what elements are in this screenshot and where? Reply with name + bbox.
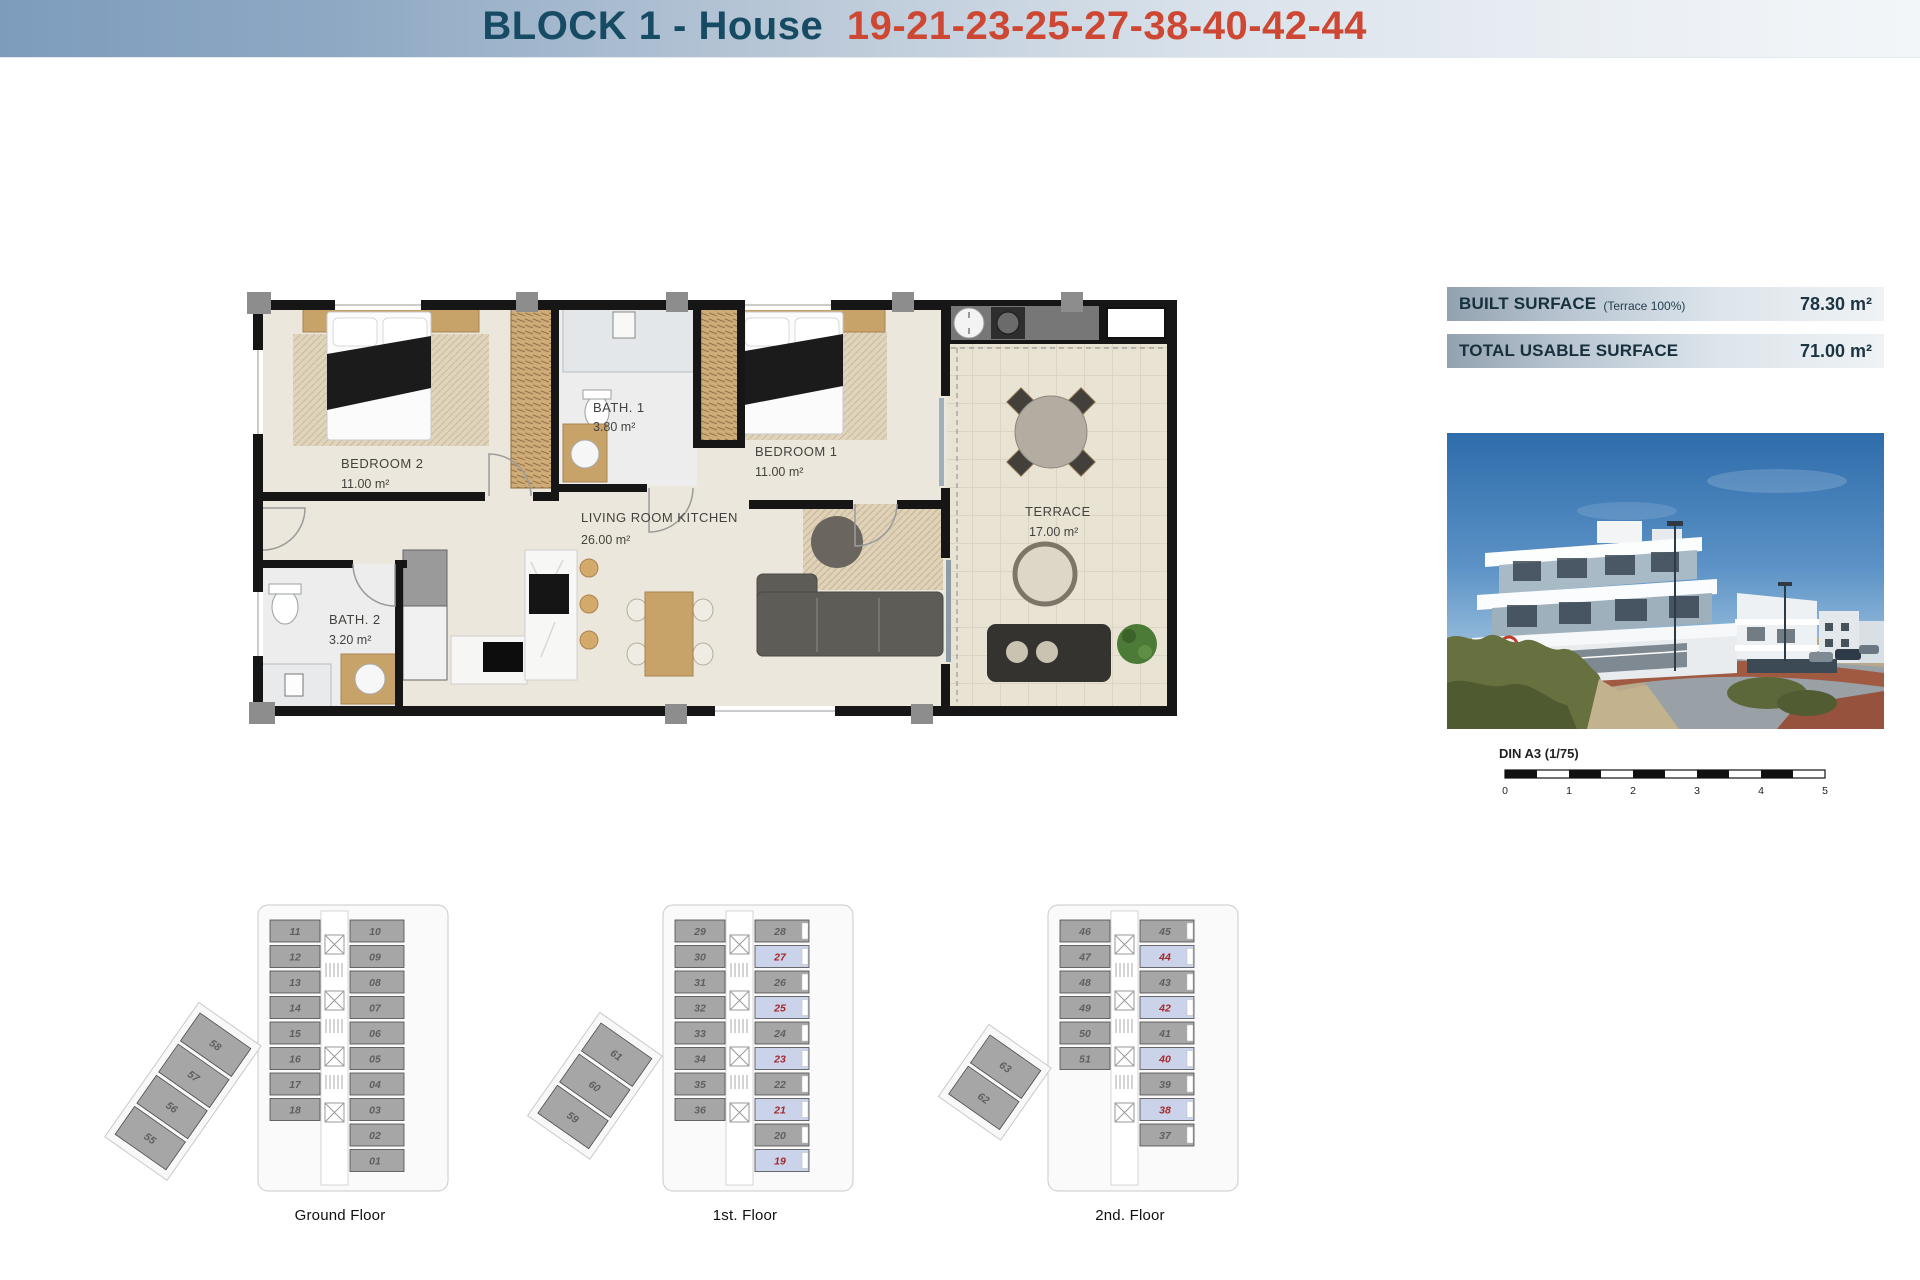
- balcony-notch: [802, 1153, 808, 1169]
- balcony-notch: [1187, 1127, 1193, 1143]
- unit-number: 17: [289, 1079, 302, 1091]
- balcony-notch: [802, 1051, 808, 1067]
- unit-number: 11: [290, 926, 301, 938]
- unit-number: 10: [369, 926, 381, 938]
- unit-number: 46: [1078, 926, 1091, 938]
- balcony-notch: [1187, 1025, 1193, 1041]
- scale-tick: 4: [1758, 785, 1764, 797]
- room-area-bedroom1: 11.00 m²: [755, 465, 803, 479]
- pillow: [745, 318, 789, 346]
- diagonal-wing: 616059: [528, 1012, 663, 1159]
- built-surface-value: 78.30 m²: [1800, 294, 1872, 315]
- balcony-notch: [1187, 1051, 1193, 1067]
- unit-number: 36: [694, 1105, 706, 1117]
- unit-number: 24: [773, 1028, 786, 1040]
- brochure-page: BLOCK 1 - House 19-21-23-25-27-38-40-42-…: [0, 0, 1920, 1280]
- balcony-notch: [802, 1127, 808, 1143]
- title-house-numbers: 19-21-23-25-27-38-40-42-44: [847, 4, 1367, 48]
- unit-number: 18: [289, 1105, 301, 1117]
- usable-surface-row: TOTAL USABLE SURFACE 71.00 m²: [1447, 334, 1884, 368]
- balcony-notch: [802, 1025, 808, 1041]
- balcony-notch: [802, 974, 808, 990]
- floor-label-ground: Ground Floor: [220, 1207, 460, 1224]
- fridge: [403, 550, 447, 606]
- unit-number: 35: [694, 1079, 706, 1091]
- balcony-notch: [1187, 974, 1193, 990]
- floor-plan-second: 6362464748495051454443424140393837 2nd. …: [890, 895, 1260, 1235]
- room-label-terrace: TERRACE: [1025, 504, 1091, 519]
- scale-segment: [1761, 770, 1793, 778]
- balcony-notch: [1187, 949, 1193, 965]
- terrace-round-rug: [1015, 544, 1075, 604]
- sliding-door: [939, 398, 944, 486]
- unit-number: 04: [369, 1079, 381, 1091]
- balcony-notch: [802, 949, 808, 965]
- scale-segment: [1569, 770, 1601, 778]
- unit-number: 32: [694, 1003, 706, 1015]
- chair: [693, 643, 713, 665]
- cooktop: [529, 574, 569, 614]
- floor-plan-first: 6160592930313233343536282726252423222120…: [505, 895, 875, 1235]
- scale-tick: 5: [1822, 785, 1828, 797]
- built-surface-label: BUILT SURFACE: [1459, 294, 1596, 314]
- unit-number: 51: [1079, 1054, 1091, 1066]
- unit-number: 38: [1159, 1105, 1171, 1117]
- unit-number: 16: [289, 1054, 301, 1066]
- sink: [355, 664, 385, 694]
- shower-fixture: [613, 312, 635, 338]
- balcony-notch: [1187, 1000, 1193, 1016]
- room-area-bath1: 3.80 m²: [593, 420, 635, 434]
- unit-number: 37: [1159, 1130, 1172, 1142]
- built-surface-note: (Terrace 100%): [1603, 296, 1685, 313]
- page-title: BLOCK 1 - House 19-21-23-25-27-38-40-42-…: [482, 4, 1366, 49]
- unit-number: 40: [1158, 1054, 1171, 1066]
- scale-segment: [1537, 770, 1569, 778]
- chair: [627, 599, 647, 621]
- pillow: [333, 318, 377, 346]
- balcony-notch: [802, 1076, 808, 1092]
- scale-segment: [1665, 770, 1697, 778]
- unit-number: 39: [1159, 1079, 1171, 1091]
- built-surface-row: BUILT SURFACE (Terrace 100%) 78.30 m²: [1447, 287, 1884, 321]
- stool: [580, 595, 598, 613]
- scale-segment: [1793, 770, 1825, 778]
- unit-number: 01: [369, 1156, 381, 1168]
- scale-label: DIN A3 (1/75): [1499, 746, 1837, 761]
- lamp-head: [1667, 521, 1683, 526]
- scale-tick: 0: [1502, 785, 1508, 797]
- plant-leaf: [1122, 629, 1136, 643]
- unit-number: 25: [773, 1003, 786, 1015]
- unit-number: 30: [694, 952, 706, 964]
- unit-number: 14: [289, 1003, 301, 1015]
- unit-number: 22: [773, 1079, 786, 1091]
- wardrobe: [701, 302, 741, 442]
- wardrobe: [511, 302, 553, 488]
- unit-number: 50: [1079, 1028, 1091, 1040]
- unit-number: 28: [773, 926, 786, 938]
- unit-number: 12: [289, 952, 301, 964]
- room-area-living: 26.00 m²: [581, 533, 630, 547]
- unit-number: 34: [694, 1054, 706, 1066]
- unit-number: 13: [289, 977, 301, 989]
- apartment-plan-drawing: BEDROOM 2 11.00 m² BATH. 1 3.80 m² BEDRO…: [245, 292, 1185, 724]
- floor-plan-ground: 5857565511121314151617181009080706050403…: [100, 895, 470, 1235]
- usable-surface-label: TOTAL USABLE SURFACE: [1459, 341, 1678, 361]
- room-area-bedroom2: 11.00 m²: [341, 477, 389, 491]
- plant: [1117, 624, 1157, 664]
- unit-number: 21: [773, 1105, 786, 1117]
- room-area-terrace: 17.00 m²: [1029, 525, 1078, 539]
- diagonal-wing: 6362: [938, 1024, 1051, 1140]
- unit-number: 47: [1078, 952, 1092, 964]
- sofa: [757, 592, 943, 656]
- roof-box: [1597, 521, 1642, 543]
- scale-bar-block: DIN A3 (1/75) 0 1 2 3 4 5: [1497, 746, 1837, 805]
- unit-number: 02: [369, 1130, 381, 1142]
- room-label-bath2: BATH. 2: [329, 612, 381, 627]
- plant-leaf: [1138, 645, 1152, 659]
- cloud: [1707, 469, 1847, 493]
- scale-segment: [1505, 770, 1537, 778]
- cloud: [1577, 502, 1677, 520]
- diagonal-wing: 58575655: [105, 1002, 261, 1180]
- tv: [483, 642, 523, 672]
- room-area-bath2: 3.20 m²: [329, 633, 371, 647]
- unit-number: 07: [369, 1003, 382, 1015]
- bush: [1777, 690, 1837, 716]
- scale-tick: 3: [1694, 785, 1700, 797]
- unit-number: 09: [369, 952, 381, 964]
- balcony-notch: [802, 1000, 808, 1016]
- unit-number: 33: [694, 1028, 706, 1040]
- unit-number: 27: [773, 952, 787, 964]
- room-label-bedroom2: BEDROOM 2: [341, 456, 424, 471]
- unit-number: 31: [694, 977, 706, 989]
- shower-fixture: [285, 674, 303, 696]
- unit-number: 48: [1078, 977, 1091, 989]
- unit-number: 41: [1158, 1028, 1171, 1040]
- unit-number: 03: [369, 1105, 381, 1117]
- kitchen-island: [525, 550, 577, 680]
- unit-number: 44: [1158, 952, 1171, 964]
- sliding-door: [946, 560, 951, 662]
- balcony-notch: [802, 923, 808, 939]
- unit-number: 23: [773, 1054, 786, 1066]
- chair: [693, 599, 713, 621]
- unit-number: 45: [1158, 926, 1171, 938]
- unit-number: 15: [289, 1028, 301, 1040]
- unit-number: 26: [773, 977, 786, 989]
- room-label-living: LIVING ROOM KITCHEN: [581, 510, 738, 525]
- terrace-cushion: [1006, 641, 1028, 663]
- lamp-head: [1778, 582, 1792, 586]
- balcony-notch: [802, 1102, 808, 1118]
- balcony-notch: [1187, 923, 1193, 939]
- unit-number: 08: [369, 977, 381, 989]
- scale-segment: [1633, 770, 1665, 778]
- unit-number: 42: [1158, 1003, 1171, 1015]
- ac-unit: [1107, 308, 1165, 338]
- title-prefix: BLOCK 1 - House: [482, 4, 823, 48]
- sink: [571, 440, 599, 468]
- balcony-notch: [1187, 1076, 1193, 1092]
- terrace-cushion: [1036, 641, 1058, 663]
- dining-table: [645, 592, 693, 676]
- floor-label-first: 1st. Floor: [625, 1207, 865, 1224]
- chair: [627, 643, 647, 665]
- unit-number: 06: [369, 1028, 381, 1040]
- building-photo: [1447, 433, 1884, 729]
- unit-number: 49: [1078, 1003, 1091, 1015]
- balcony-notch: [1187, 1102, 1193, 1118]
- surface-panel: BUILT SURFACE (Terrace 100%) 78.30 m² TO…: [1447, 287, 1884, 381]
- usable-surface-value: 71.00 m²: [1800, 341, 1872, 362]
- scale-segment: [1601, 770, 1633, 778]
- scale-segment: [1697, 770, 1729, 778]
- apartment-floor-plan: BEDROOM 2 11.00 m² BATH. 1 3.80 m² BEDRO…: [245, 292, 1185, 724]
- room-label-bedroom1: BEDROOM 1: [755, 444, 838, 459]
- unit-number: 05: [369, 1054, 381, 1066]
- toilet-tank: [269, 584, 301, 594]
- scale-tick: 2: [1630, 785, 1636, 797]
- toilet: [272, 590, 298, 624]
- terrace-table: [1015, 396, 1087, 468]
- washer-drum: [997, 312, 1019, 334]
- scale-segment: [1729, 770, 1761, 778]
- unit-number: 29: [693, 926, 706, 938]
- stool: [580, 631, 598, 649]
- stool: [580, 559, 598, 577]
- scale-bar: 0 1 2 3 4 5: [1497, 764, 1837, 800]
- scale-tick: 1: [1566, 785, 1572, 797]
- toilet-tank: [583, 390, 611, 399]
- unit-number: 19: [774, 1156, 786, 1168]
- room-label-bath1: BATH. 1: [593, 400, 645, 415]
- unit-number: 20: [773, 1130, 786, 1142]
- floor-label-second: 2nd. Floor: [1010, 1207, 1250, 1224]
- unit-number: 43: [1158, 977, 1171, 989]
